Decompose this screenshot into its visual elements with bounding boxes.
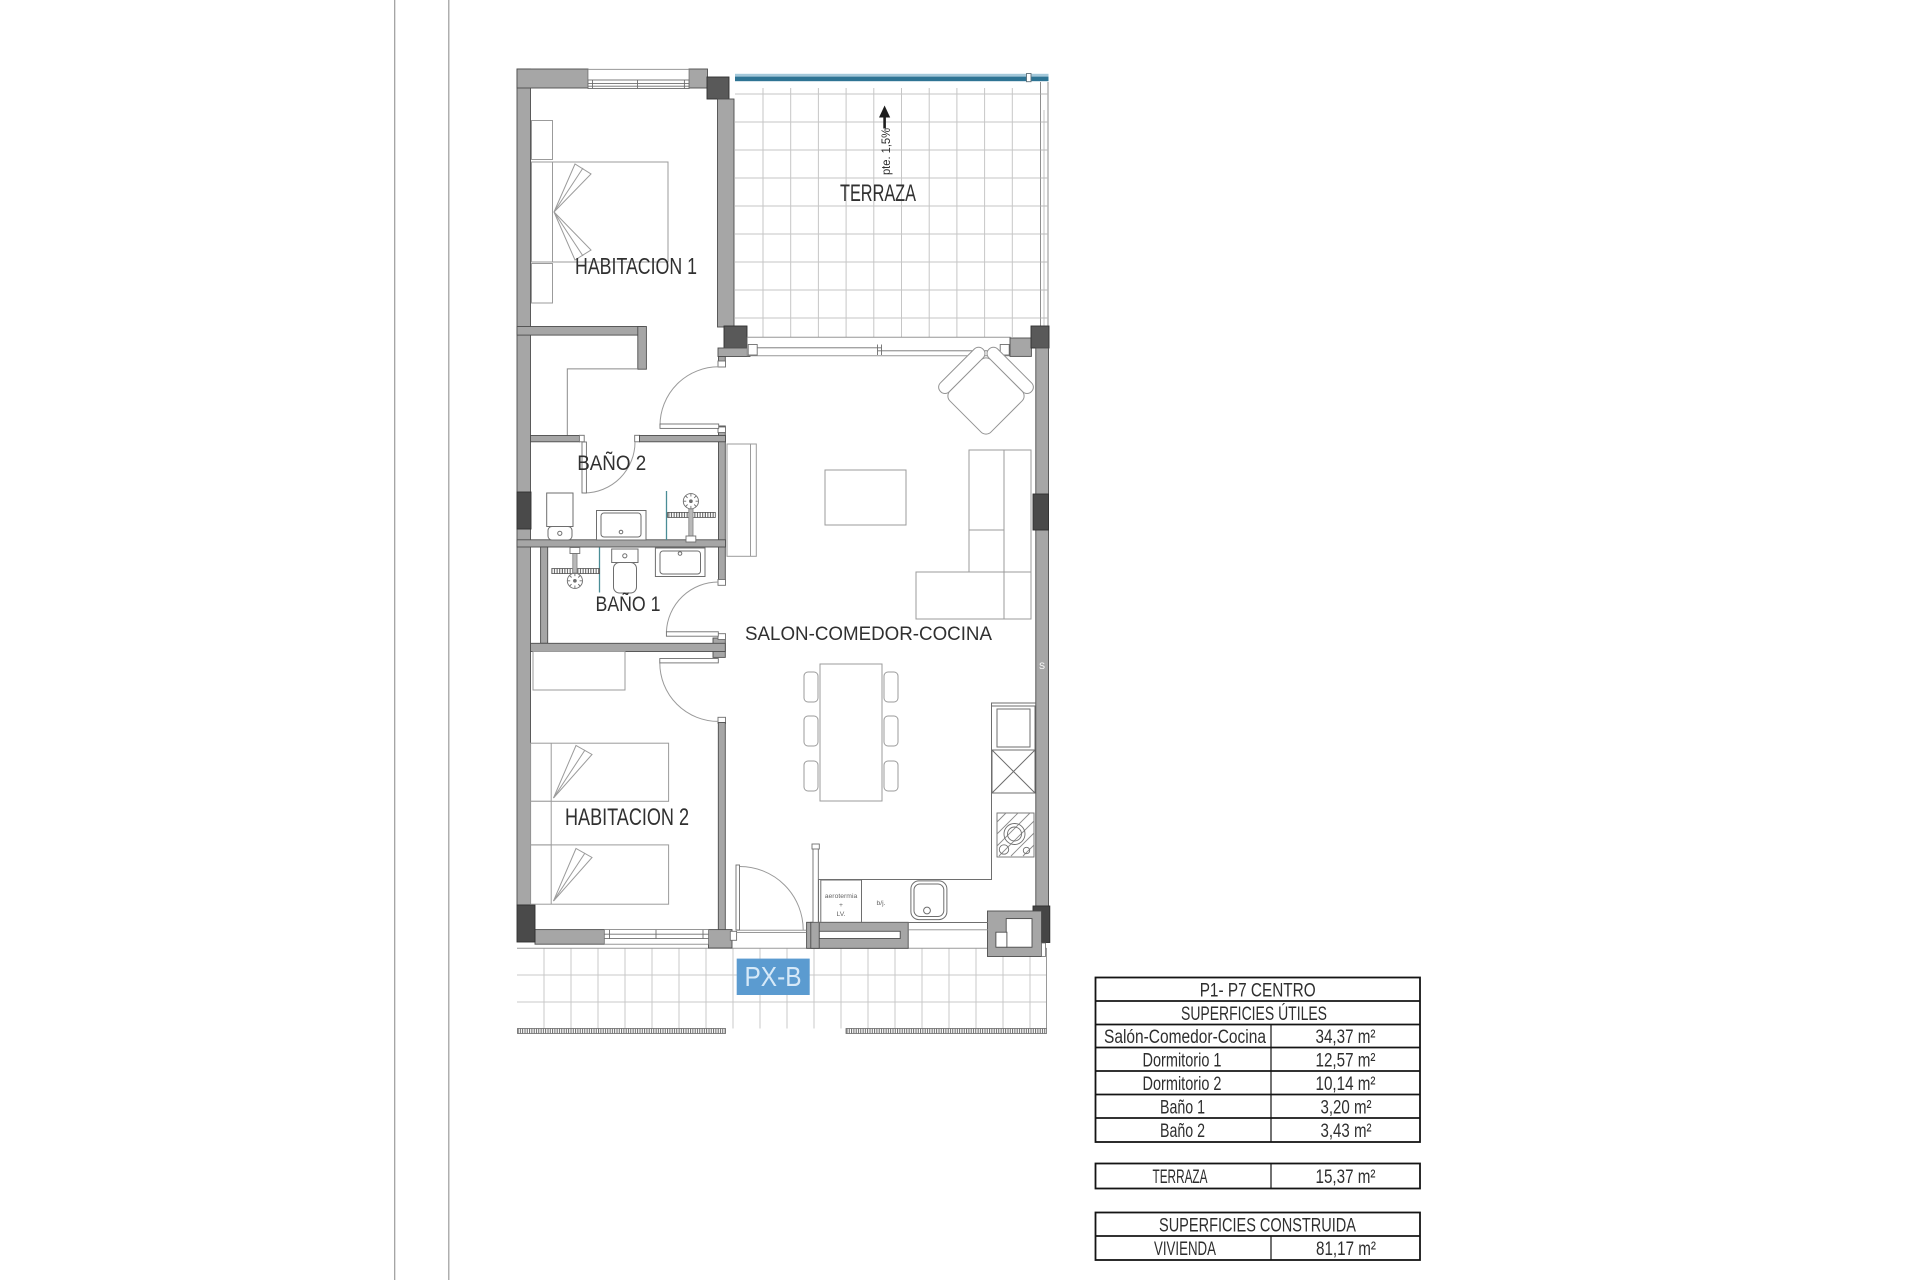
- svg-text:HABITACION 1: HABITACION 1: [575, 253, 697, 279]
- svg-text:34,37 m²: 34,37 m²: [1316, 1027, 1376, 1048]
- svg-text:Salón-Comedor-Cocina: Salón-Comedor-Cocina: [1104, 1027, 1266, 1048]
- svg-text:81,17 m²: 81,17 m²: [1316, 1239, 1376, 1260]
- svg-text:TERRAZA: TERRAZA: [840, 180, 916, 207]
- svg-text:aerotermia: aerotermia: [825, 893, 858, 900]
- svg-text:VIVIENDA: VIVIENDA: [1154, 1239, 1216, 1260]
- svg-text:BAÑO 2: BAÑO 2: [577, 450, 646, 475]
- svg-text:P1- P7 CENTRO: P1- P7 CENTRO: [1200, 981, 1316, 1002]
- svg-text:pte. 1,5%: pte. 1,5%: [881, 128, 893, 175]
- svg-text:HABITACION 2: HABITACION 2: [565, 804, 689, 831]
- svg-text:TERRAZA: TERRAZA: [1153, 1167, 1208, 1188]
- svg-text:S: S: [1039, 661, 1045, 671]
- svg-text:3,20 m²: 3,20 m²: [1321, 1098, 1372, 1119]
- svg-text:15,37 m²: 15,37 m²: [1316, 1167, 1376, 1188]
- svg-text:LV.: LV.: [836, 911, 845, 918]
- svg-text:3,43 m²: 3,43 m²: [1321, 1121, 1372, 1142]
- svg-text:BAÑO 1: BAÑO 1: [596, 591, 661, 616]
- svg-text:Baño 1: Baño 1: [1160, 1098, 1205, 1119]
- svg-text:SALON-COMEDOR-COCINA: SALON-COMEDOR-COCINA: [745, 623, 992, 645]
- svg-text:Dormitorio 2: Dormitorio 2: [1143, 1074, 1222, 1095]
- svg-text:+: +: [839, 902, 843, 909]
- svg-text:SUPERFICIES CONSTRUIDA: SUPERFICIES CONSTRUIDA: [1159, 1216, 1356, 1237]
- svg-text:b/j.: b/j.: [876, 900, 885, 907]
- svg-text:PX-B: PX-B: [745, 961, 802, 992]
- svg-text:Dormitorio 1: Dormitorio 1: [1143, 1051, 1222, 1072]
- svg-text:SUPERFICIES ÚTILES: SUPERFICIES ÚTILES: [1181, 1003, 1327, 1025]
- svg-text:Baño 2: Baño 2: [1160, 1121, 1205, 1142]
- svg-text:10,14 m²: 10,14 m²: [1316, 1074, 1376, 1095]
- svg-text:12,57 m²: 12,57 m²: [1316, 1051, 1376, 1072]
